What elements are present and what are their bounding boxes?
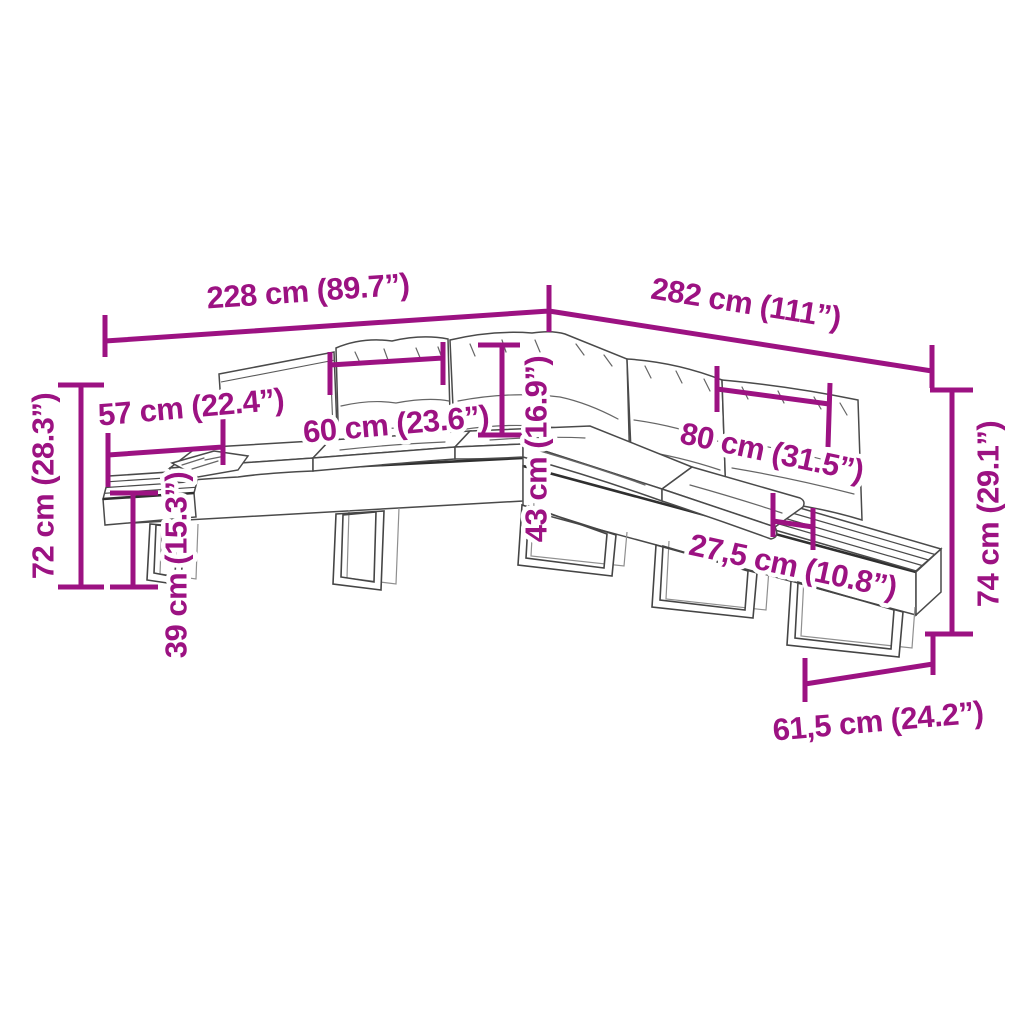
dim-43cm-label: 43 cm (16.9”) bbox=[519, 356, 554, 543]
dim-74cm-label: 74 cm (29.1”) bbox=[971, 421, 1006, 608]
dimension-diagram-page: 228 cm (89.7”) 282 cm (111”) 57 cm (22.4… bbox=[0, 0, 1024, 1024]
sofa-dimension-diagram: 228 cm (89.7”) 282 cm (111”) 57 cm (22.4… bbox=[0, 0, 1024, 1024]
dim-39cm-label: 39 cm (15.3”) bbox=[159, 472, 194, 659]
dim-72cm-label: 72 cm (28.3”) bbox=[26, 393, 61, 580]
